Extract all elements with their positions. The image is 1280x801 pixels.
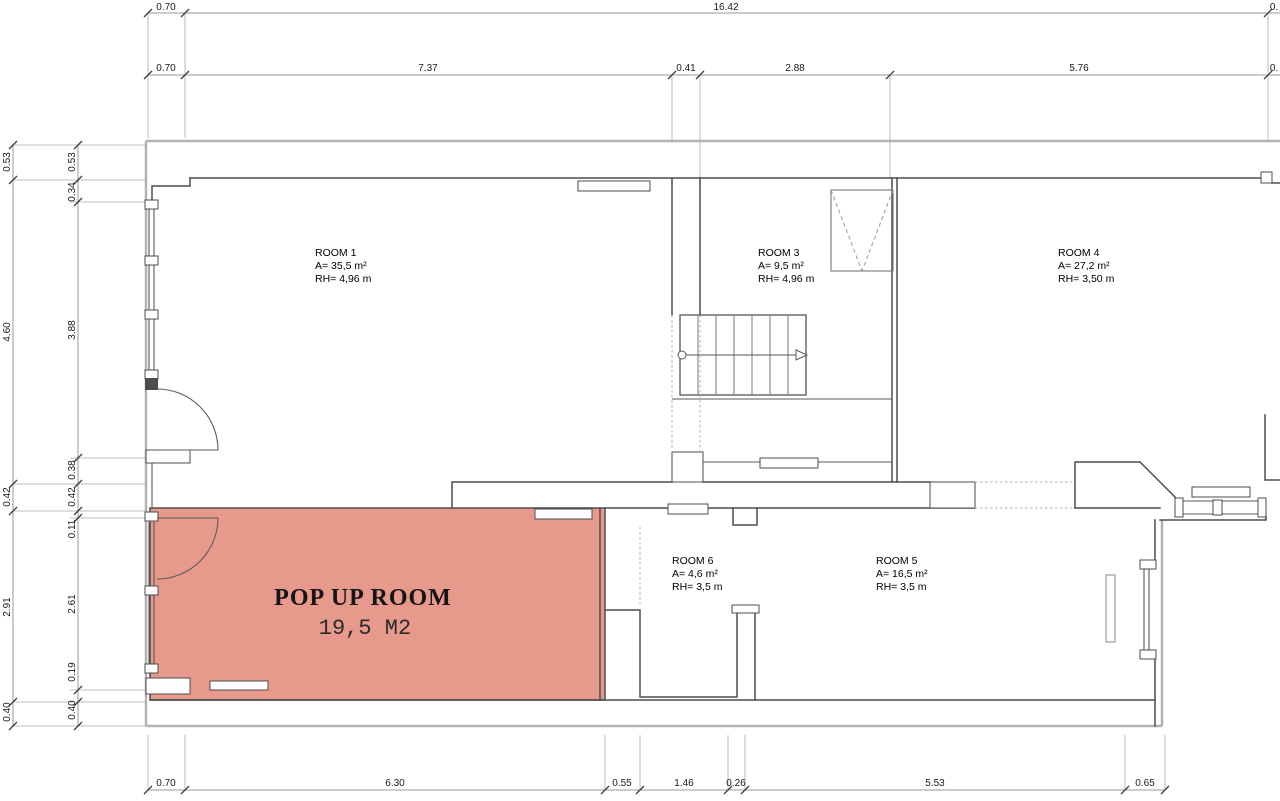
skylight [831,190,893,271]
wall-stub [146,678,190,694]
dimension-column-left-inner: 0.53 0.34 3.88 0.38 0.42 0.11 2.61 0.19 … [67,141,150,730]
dim-label: 2.88 [785,63,805,74]
dimension-row-top-inner: 0.70 7.37 0.41 2.88 5.76 0. [144,63,1280,178]
dimension-row-bottom: 0.70 6.30 0.55 1.46 0.26 5.53 0.65 [144,735,1169,794]
wall-niche [733,508,757,525]
room-name: ROOM 6 [672,555,714,567]
popup-room-title: POP UP ROOM [274,585,452,611]
room-name: ROOM 3 [758,247,800,259]
dim-label: 0.34 [67,182,78,202]
chimney [672,452,703,482]
room-height: RH= 3,5 m [876,581,927,593]
dim-label: 0.42 [67,487,78,507]
dim-label: 0.19 [67,662,78,682]
dim-label: 0.26 [726,778,746,789]
dim-label: 0.11 [67,519,78,538]
stair-arrow-icon [796,350,807,360]
dim-label: 0.70 [156,63,176,74]
door-swing-icon [157,389,218,450]
dim-label: 0.42 [2,487,13,507]
radiator [1106,575,1115,642]
dim-label: 3.88 [67,320,78,340]
window-icon [1192,487,1250,497]
dim-label: 0.70 [156,778,176,789]
room-name: ROOM 1 [315,247,357,259]
window-icon [578,181,650,191]
room-area: A= 4,6 m² [672,568,718,580]
dim-label: 7.37 [418,63,438,74]
window-icon [210,681,268,690]
room-6-label: ROOM 6 A= 4,6 m² RH= 3,5 m [672,555,723,593]
room-area: A= 27,2 m² [1058,260,1110,272]
room-height: RH= 4,96 m [315,273,372,285]
room-area: A= 9,5 m² [758,260,804,272]
dim-label: 6.30 [385,778,405,789]
room-4-label: ROOM 4 A= 27,2 m² RH= 3,50 m [1058,247,1115,285]
room-area: A= 35,5 m² [315,260,367,272]
dim-label: 2.91 [2,597,13,617]
floor-plan-page: 0.70 16.42 0. 0.70 7.37 0.41 2.88 5.76 0… [0,0,1280,801]
popup-room: POP UP ROOM 19,5 M2 [150,508,605,700]
dimension-column-left-outer: 0.53 4.60 0.42 2.91 0.40 [2,141,146,730]
skylight-dashed-icon [831,190,893,271]
window-glazing [1144,568,1149,650]
room-area: A= 16,5 m² [876,568,928,580]
dim-label: 1.46 [674,778,694,789]
room-3-label: ROOM 3 A= 9,5 m² RH= 4,96 m [758,247,815,285]
dim-label: 0.40 [2,702,13,722]
room-name: ROOM 5 [876,555,918,567]
dimension-row-top-outer: 0.70 16.42 0. [144,2,1280,140]
room-1-label: ROOM 1 A= 35,5 m² RH= 4,96 m [315,247,372,285]
dim-label: 5.76 [1069,63,1089,74]
stair-start-icon [678,351,686,359]
room-name: ROOM 4 [1058,247,1100,259]
dim-label: 2.61 [67,594,78,614]
window-icon [668,504,708,514]
window-icon [535,509,592,519]
room-5-label: ROOM 5 A= 16,5 m² RH= 3,5 m [876,555,928,593]
room-height: RH= 3,50 m [1058,273,1115,285]
dim-label: 4.60 [2,322,13,342]
dim-label: 0.40 [67,700,78,720]
window-icon [760,458,818,468]
room-height: RH= 3,5 m [672,581,723,593]
dim-label: 5.53 [925,778,945,789]
dim-label: 0. [1270,2,1278,13]
dim-label: 0.65 [1135,778,1155,789]
dim-label: 0. [1270,63,1278,74]
wall-pier [145,378,158,390]
dim-label: 0.53 [67,152,78,172]
dim-label: 0.53 [2,152,13,172]
dim-label: 0.70 [156,2,176,13]
dim-label: 0.38 [67,460,78,480]
popup-room-area: 19,5 M2 [319,616,411,641]
dim-label: 16.42 [713,2,738,13]
window-glazing [149,208,154,372]
dim-label: 0.55 [612,778,632,789]
room-height: RH= 4,96 m [758,273,815,285]
floor-plan-drawing: 0.70 16.42 0. 0.70 7.37 0.41 2.88 5.76 0… [0,0,1280,801]
staircase [678,315,807,395]
dim-label: 0.41 [676,63,696,74]
wall-sill [146,450,190,463]
wall-block [930,482,975,508]
